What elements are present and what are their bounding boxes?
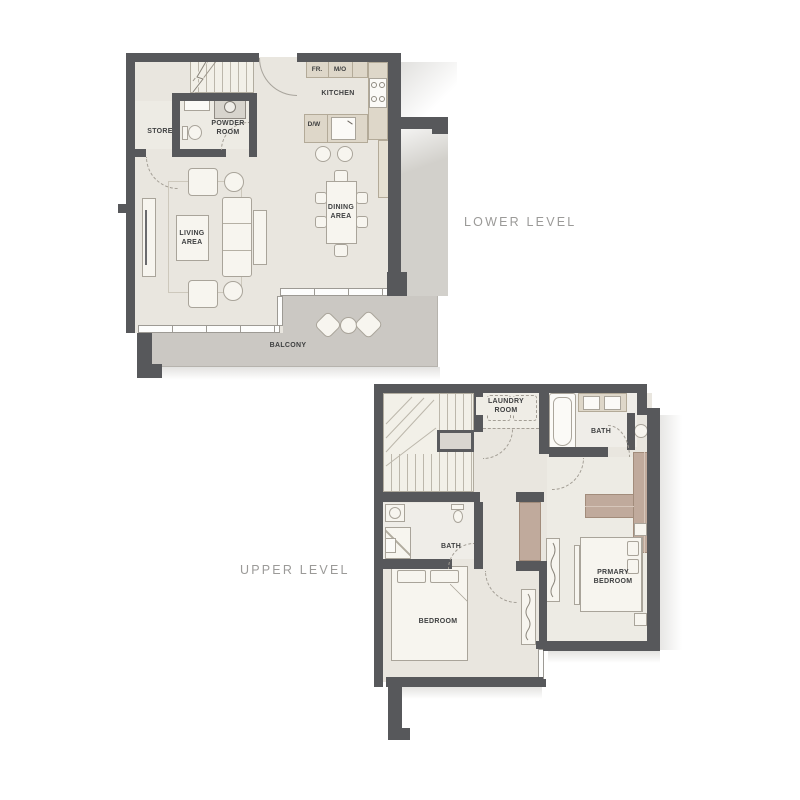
wall-segment xyxy=(637,384,647,411)
upper-level-plan: LAUNDRY ROOM BATH BATH PRMARY BEDROOM BE… xyxy=(0,0,800,800)
wall-segment xyxy=(386,677,543,687)
wall-segment xyxy=(374,384,383,687)
pillow xyxy=(430,570,459,583)
wall-segment xyxy=(539,561,547,641)
shadow xyxy=(548,651,660,663)
pillow xyxy=(627,541,639,556)
wall-segment xyxy=(549,447,608,457)
wall-segment xyxy=(543,641,660,651)
wall-segment xyxy=(383,492,480,502)
room-label-laundry: LAUNDRY ROOM xyxy=(476,397,536,415)
room-label-bedroom: BEDROOM xyxy=(408,617,468,626)
toilet-bowl xyxy=(634,424,648,438)
vanity-sink xyxy=(583,396,600,410)
round-sink xyxy=(389,507,401,519)
decor-squiggle xyxy=(547,539,559,601)
nightstand xyxy=(634,523,647,536)
nightstand xyxy=(634,613,647,626)
wall-segment xyxy=(474,502,483,569)
wall-segment xyxy=(647,411,660,651)
upper-level-title: UPPER LEVEL xyxy=(240,563,350,577)
stair-rail-void xyxy=(437,430,474,452)
wall-segment xyxy=(536,641,546,649)
wall-segment xyxy=(516,492,544,502)
shadow xyxy=(402,687,542,699)
wall-segment xyxy=(400,728,410,740)
decor-squiggle xyxy=(522,590,535,644)
dresser xyxy=(546,538,560,602)
wall-segment xyxy=(383,559,452,569)
blanket-fold xyxy=(450,584,468,602)
room-label-bath-upper: BATH xyxy=(583,427,619,436)
shower-shelf xyxy=(385,538,396,553)
stairs-upper xyxy=(383,393,474,492)
toilet-bowl xyxy=(453,510,463,523)
hall-closet xyxy=(519,502,541,561)
wall-segment xyxy=(374,384,637,393)
bed-bench xyxy=(574,545,580,605)
vanity-sink xyxy=(604,396,621,410)
window-band xyxy=(538,649,544,679)
wardrobe-divider xyxy=(644,452,645,553)
room-label-bath-lower: BATH xyxy=(433,542,469,551)
dresser xyxy=(521,589,536,645)
wall-segment xyxy=(539,392,549,454)
pillow xyxy=(397,570,426,583)
wardrobe-divider xyxy=(585,506,634,507)
room-label-primary-bedroom: PRMARY BEDROOM xyxy=(583,568,643,586)
shadow xyxy=(660,415,682,650)
floorplan-canvas: STORE POWDER ROOM KITCHEN FR. M/O D/W DI… xyxy=(0,0,800,800)
bathtub-inner xyxy=(553,397,572,446)
